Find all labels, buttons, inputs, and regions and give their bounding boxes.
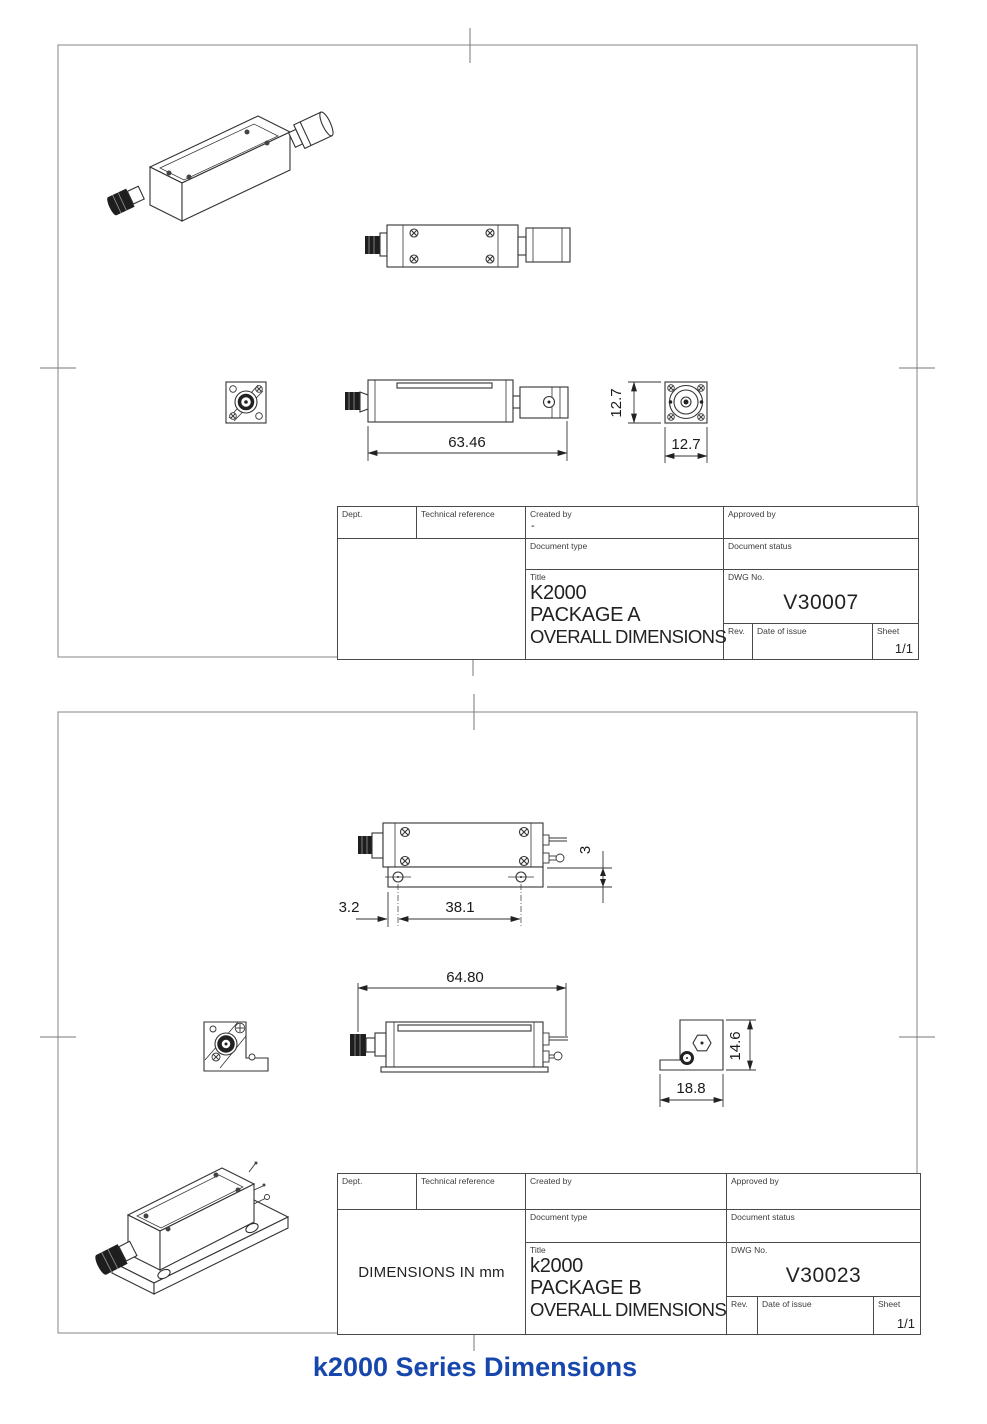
side-view-package-a (345, 380, 568, 422)
technical-reference-label: Technical reference (417, 1174, 525, 1186)
dwg-no-value: V30007 (724, 591, 918, 615)
dwg-no-label: DWG No. (724, 570, 918, 582)
side-view-b-pins (543, 1033, 568, 1062)
rev-label: Rev. (727, 1297, 757, 1309)
title-label: Title (526, 1243, 726, 1255)
document-type-cell: Document type (526, 1210, 727, 1243)
note-cell (338, 539, 526, 659)
title-line-1: k2000 (526, 1255, 726, 1277)
end-view-package-a-left (226, 382, 266, 423)
sheet-cell: Sheet 1/1 (873, 624, 918, 659)
dim-length-b-text: 64.80 (446, 969, 484, 986)
figure-caption: k2000 Series Dimensions (0, 1352, 950, 1383)
rev-cell: Rev. (724, 624, 753, 659)
end-view-package-b-right (660, 1020, 723, 1070)
approved-by-label: Approved by (727, 1174, 920, 1186)
top-view-package-a (365, 225, 570, 267)
sheet-label: Sheet (874, 1297, 920, 1309)
iso-view-package-a (105, 110, 335, 221)
dim-height-a (628, 382, 661, 423)
dept-label: Dept. (338, 507, 416, 519)
dim-height-b-text: 14.6 (727, 1031, 744, 1060)
document-status-label: Document status (727, 1210, 920, 1222)
dim-pin-offset-b-text: 3 (577, 846, 594, 854)
title-label: Title (526, 570, 723, 582)
datasheet-page: 63.46 12.7 12.7 (0, 0, 987, 1424)
approved-by-cell: Approved by (724, 507, 918, 539)
dwg-no-label: DWG No. (727, 1243, 920, 1255)
top-view-b-pins (543, 835, 567, 863)
dim-hole-offset-spacing-b (356, 884, 521, 927)
dwg-no-value: V30023 (727, 1264, 920, 1288)
dim-base-width-b-text: 18.8 (676, 1080, 705, 1097)
end-view-package-a-right (665, 382, 707, 423)
dept-cell: Dept. (338, 507, 417, 539)
date-of-issue-cell: Date of issue (758, 1297, 874, 1334)
title-line-2: PACKAGE B (526, 1277, 726, 1299)
dim-length-a-text: 63.46 (448, 434, 486, 451)
dim-height-a-text: 12.7 (608, 388, 625, 417)
note-text: DIMENSIONS IN mm (358, 1264, 505, 1281)
created-by-cell: Created by (526, 1174, 727, 1210)
created-by-value: - (526, 519, 723, 532)
sheet-label: Sheet (873, 624, 918, 636)
document-status-cell: Document status (727, 1210, 920, 1243)
sma-connector-iso-a (105, 184, 145, 217)
iso-view-package-b (93, 1162, 288, 1295)
approved-by-label: Approved by (724, 507, 918, 519)
note-cell: DIMENSIONS IN mm (338, 1210, 526, 1334)
side-view-package-b (350, 1022, 568, 1072)
date-of-issue-cell: Date of issue (753, 624, 873, 659)
document-status-label: Document status (724, 539, 918, 551)
title-cell: Title k2000 PACKAGE B OVERALL DIMENSIONS (526, 1243, 727, 1334)
title-line-2: PACKAGE A (526, 604, 723, 626)
technical-reference-cell: Technical reference (417, 507, 526, 539)
end-view-package-b-left (204, 1022, 268, 1071)
document-status-cell: Document status (724, 539, 918, 570)
sheet-cell: Sheet 1/1 (874, 1297, 920, 1334)
title-block-package-b: Dept. Technical reference Created by App… (337, 1173, 921, 1335)
rev-label: Rev. (724, 624, 752, 636)
sheet-value: 1/1 (895, 641, 913, 656)
rev-cell: Rev. (727, 1297, 758, 1334)
title-line-3: OVERALL DIMENSIONS (526, 627, 723, 648)
title-cell: Title K2000 PACKAGE A OVERALL DIMENSIONS (526, 570, 724, 659)
created-by-label: Created by (526, 1174, 726, 1186)
technical-reference-label: Technical reference (417, 507, 525, 519)
dwg-no-cell: DWG No. V30023 (727, 1243, 920, 1297)
dim-width-a-text: 12.7 (671, 436, 700, 453)
technical-reference-cell: Technical reference (417, 1174, 526, 1210)
document-type-label: Document type (526, 1210, 726, 1222)
document-type-cell: Document type (526, 539, 724, 570)
bnc-connector-iso-a (287, 110, 336, 151)
created-by-value (526, 1186, 726, 1187)
created-by-label: Created by (526, 507, 723, 519)
dim-hole-spacing-b-text: 38.1 (445, 899, 474, 916)
dept-label: Dept. (338, 1174, 416, 1186)
approved-by-cell: Approved by (727, 1174, 920, 1210)
title-block-package-a: Dept. Technical reference Created by - A… (337, 506, 919, 660)
date-of-issue-label: Date of issue (753, 624, 872, 636)
dim-hole-offset-b-text: 3.2 (339, 899, 360, 916)
created-by-cell: Created by - (526, 507, 724, 539)
top-view-package-b (358, 823, 567, 887)
title-line-3: OVERALL DIMENSIONS (526, 1300, 726, 1321)
title-line-1: K2000 (526, 582, 723, 604)
dwg-no-cell: DWG No. V30007 (724, 570, 918, 624)
date-of-issue-label: Date of issue (758, 1297, 873, 1309)
document-type-label: Document type (526, 539, 723, 551)
dept-cell: Dept. (338, 1174, 417, 1210)
sheet-value: 1/1 (897, 1316, 915, 1331)
